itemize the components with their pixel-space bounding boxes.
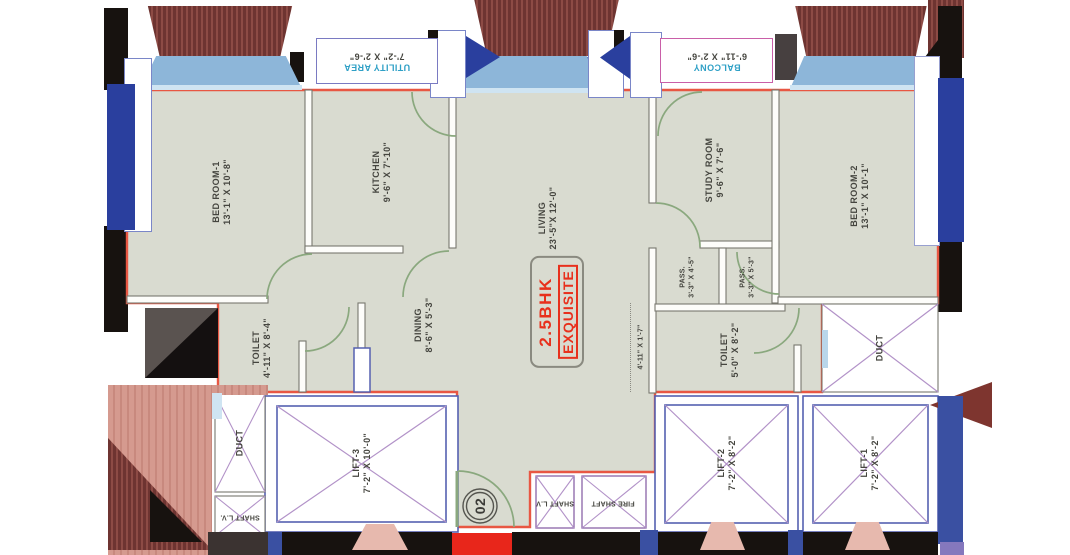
- room-label-dining: DINING 8'-6" X 5'-3": [413, 297, 436, 352]
- study-name: STUDY ROOM: [704, 138, 715, 203]
- toilet1-dims: 4'-11" X 8'-4": [262, 318, 273, 378]
- window-sill-bedroom2: [790, 85, 933, 90]
- pass1-name: PASS.: [679, 266, 688, 288]
- room-label-pass2: PASS. 3'-3" X 5'-3": [739, 256, 757, 297]
- toilet1-name: TOILET: [251, 331, 262, 365]
- dining-name: DINING: [413, 308, 424, 342]
- bedroom2-name: BED ROOM-2: [849, 165, 860, 227]
- lift2-dims: 7'-2" X 8'-2": [727, 435, 738, 490]
- wall-band-b5: [640, 530, 658, 555]
- utility-label: UTILITY AREA 7'-2" X 2'-6": [344, 50, 410, 73]
- wall-band-b1: [208, 532, 268, 555]
- living-dims: 23'-5"X 12'-0": [548, 187, 559, 250]
- duct-left-sill: [212, 393, 222, 419]
- kitchen-dims: 9'-6" X 7'-10": [382, 142, 393, 202]
- wall-band-right: [914, 56, 940, 246]
- dining-dims: 8'-6" X 5'-3": [424, 297, 435, 352]
- lift1-name: LIFT-1: [859, 449, 870, 478]
- utility-dims: 7'-2" X 2'-6": [349, 50, 404, 61]
- lift2-name: LIFT-2: [716, 449, 727, 478]
- window-right-edge: [938, 78, 964, 242]
- utility-name: UTILITY AREA: [344, 61, 410, 72]
- room-label-study: STUDY ROOM 9'-6" X 7'-6": [704, 138, 727, 203]
- foyer-dims: 4'-11" X 1'-7": [638, 324, 647, 369]
- lift3-dims: 7'-2" X 10'-0": [362, 433, 373, 493]
- room-label-pass1: PASS. 3'-3" X 4'-5": [679, 256, 697, 297]
- room-label-shaft-lv-mid: SHAFT L.V: [536, 498, 574, 507]
- balcony-dims: 6'-11" X 2'-6": [687, 49, 747, 60]
- room-label-foyer: 4'-11" X 1'-7": [638, 324, 647, 369]
- room-label-shaft-lv-left: SHAFT L.V.: [220, 512, 259, 521]
- foyer-dotted-line: [630, 303, 631, 392]
- toilet2-dims: 5'-0" X 8'-2": [730, 322, 741, 377]
- balcony-label: BALCONY 6'-11" X 2'-6": [687, 49, 747, 72]
- window-sill-living: [455, 88, 603, 93]
- balcony-box: BALCONY 6'-11" X 2'-6": [660, 38, 773, 83]
- room-label-kitchen: KITCHEN 9'-6" X 7'-10": [371, 142, 394, 202]
- pass2-name: PASS.: [739, 266, 748, 288]
- room-label-toilet2: TOILET 5'-0" X 8'-2": [719, 322, 742, 377]
- living-name: LIVING: [537, 202, 548, 234]
- room-label-bedroom1: BED ROOM-1 13'-1" X 10'-8": [211, 159, 234, 225]
- room-label-lift3: LIFT-3 7'-2" X 10'-0": [351, 433, 374, 493]
- duct-left-name: DUCT: [234, 430, 245, 457]
- pass2-dims: 3'-3" X 5'-3": [748, 256, 757, 297]
- room-label-lift2: LIFT-2 7'-2" X 8'-2": [716, 435, 739, 490]
- kitchen-name: KITCHEN: [371, 151, 382, 194]
- dining-pillar: [354, 348, 370, 392]
- floor-plan: UTILITY AREA 7'-2" X 2'-6" BALCONY 6'-11…: [0, 0, 1070, 555]
- shaft-lv-mid-name: SHAFT L.V: [536, 498, 574, 507]
- balcony-name: BALCONY: [693, 61, 740, 72]
- duct-right-name: DUCT: [874, 335, 885, 362]
- bedroom1-dims: 13'-1" X 10'-8": [222, 159, 233, 225]
- fire-shaft-name: FIRE SHAFT: [591, 498, 634, 507]
- room-label-bedroom2: BED ROOM-2 13'-1" X 10'-1": [849, 163, 872, 229]
- room-label-lift1: LIFT-1 7'-2" X 8'-2": [859, 435, 882, 490]
- unit-type-label: 2.5BHK EXQUISITE: [530, 256, 584, 368]
- room-label-toilet1: TOILET 4'-11" X 8'-4": [251, 318, 274, 378]
- shaft-lv-left-name: SHAFT L.V.: [220, 512, 259, 521]
- toilet2-name: TOILET: [719, 333, 730, 367]
- lift3-name: LIFT-3: [351, 449, 362, 478]
- pillar-balcony-left: [630, 32, 662, 98]
- wall-band-br-purple: [940, 542, 964, 555]
- room-label-duct-left: DUCT: [234, 430, 245, 457]
- wall-band-b2: [268, 532, 282, 555]
- window-sill-bedroom1: [140, 85, 302, 90]
- study-dims: 9'-6" X 7'-6": [715, 142, 726, 197]
- pass1-dims: 3'-3" X 4'-5": [688, 256, 697, 297]
- wall-band-right-vert: [938, 396, 963, 532]
- wall-band-b4: [512, 532, 640, 555]
- unit-type-line2: EXQUISITE: [558, 265, 578, 359]
- room-label-fire-shaft: FIRE SHAFT: [591, 498, 634, 507]
- unit-type-line1: 2.5BHK: [536, 277, 556, 346]
- unit-number: 02: [472, 498, 488, 515]
- entrance-mat: [452, 533, 512, 555]
- room-label-living: LIVING 23'-5"X 12'-0": [537, 187, 560, 250]
- window-left-edge: [107, 84, 135, 230]
- bedroom2-dims: 13'-1" X 10'-1": [860, 163, 871, 229]
- utility-area-box: UTILITY AREA 7'-2" X 2'-6": [316, 38, 438, 84]
- wall-band-b7: [788, 530, 803, 555]
- lift1-dims: 7'-2" X 8'-2": [870, 435, 881, 490]
- room-label-duct-right: DUCT: [874, 335, 885, 362]
- bedroom1-name: BED ROOM-1: [211, 161, 222, 223]
